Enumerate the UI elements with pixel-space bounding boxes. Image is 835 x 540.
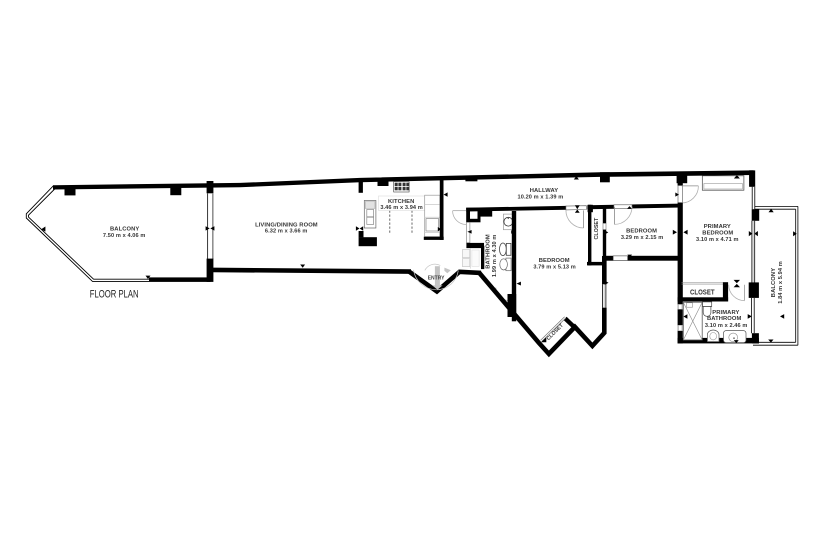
svg-text:PRIMARY: PRIMARY: [704, 224, 731, 230]
svg-text:3.79 m x 5.13 m: 3.79 m x 5.13 m: [533, 265, 576, 271]
svg-text:1.99 m x 4.30 m: 1.99 m x 4.30 m: [492, 235, 498, 278]
svg-text:1.84 m x 5.94 m: 1.84 m x 5.94 m: [778, 261, 784, 304]
svg-text:BALCONY: BALCONY: [771, 268, 777, 297]
svg-text:3.46 m x 3.94 m: 3.46 m x 3.94 m: [380, 205, 423, 211]
svg-text:BEDROOM: BEDROOM: [539, 258, 570, 264]
svg-text:FLOOR PLAN: FLOOR PLAN: [90, 288, 139, 300]
svg-text:BEDROOM: BEDROOM: [626, 229, 657, 235]
svg-text:7.50 m x 4.06 m: 7.50 m x 4.06 m: [103, 233, 146, 239]
svg-text:BEDROOM: BEDROOM: [702, 231, 733, 237]
svg-text:ENTRY: ENTRY: [428, 275, 445, 281]
svg-text:6.32 m x 3.66 m: 6.32 m x 3.66 m: [265, 229, 308, 235]
svg-text:HALLWAY: HALLWAY: [530, 188, 559, 194]
svg-text:LIVING/DINING ROOM: LIVING/DINING ROOM: [255, 223, 318, 229]
svg-text:3.29 m x 2.15 m: 3.29 m x 2.15 m: [621, 235, 664, 241]
svg-text:KITCHEN: KITCHEN: [388, 199, 414, 205]
svg-text:BATHROOM: BATHROOM: [707, 316, 742, 322]
svg-text:PRIMARY: PRIMARY: [712, 310, 739, 316]
svg-text:3.10 m x 4.71 m: 3.10 m x 4.71 m: [696, 237, 739, 243]
svg-text:3.10 m x 2.46 m: 3.10 m x 2.46 m: [705, 323, 748, 329]
svg-text:CLOSET: CLOSET: [690, 290, 715, 297]
svg-text:BATHROOM: BATHROOM: [486, 234, 492, 269]
svg-text:BALCONY: BALCONY: [110, 226, 139, 232]
svg-text:10.20 m x 1.39 m: 10.20 m x 1.39 m: [518, 194, 564, 200]
svg-text:CLOSET: CLOSET: [594, 217, 600, 240]
